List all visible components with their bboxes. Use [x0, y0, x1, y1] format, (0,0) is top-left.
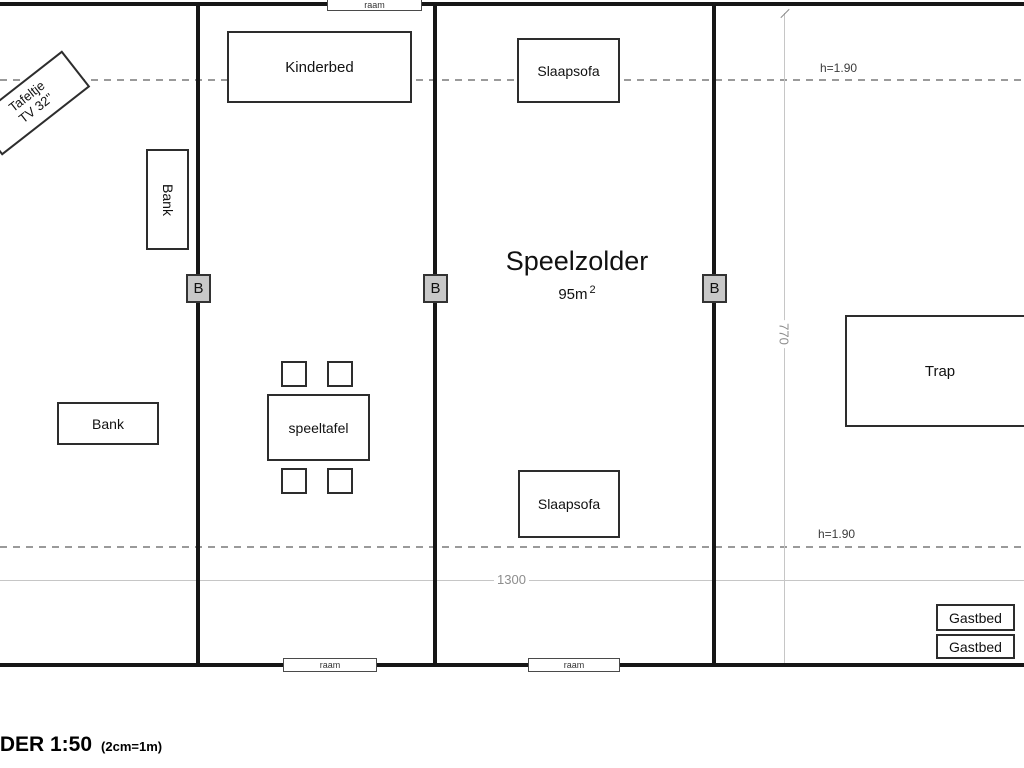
- window-marker-top: raam: [327, 0, 422, 11]
- window-label: raam: [364, 0, 385, 10]
- furniture-label: Kinderbed: [285, 59, 353, 76]
- room-area: 95m2: [437, 284, 717, 303]
- furniture-gastbed-bottom: Gastbed: [936, 634, 1015, 659]
- wall-top: [0, 2, 1024, 6]
- dimension-tick: [780, 9, 789, 18]
- clearance-height-label-top: h=1.90: [820, 61, 857, 75]
- beam-label: B: [193, 280, 203, 297]
- furniture-bank-horizontal: Bank: [57, 402, 159, 445]
- wall-vertical-center: [433, 2, 437, 667]
- beam-marker-left: B: [186, 274, 211, 303]
- chair-top-right: [327, 361, 353, 387]
- furniture-label: Trap: [925, 363, 955, 380]
- furniture-kinderbed: Kinderbed: [227, 31, 412, 103]
- clearance-dashed-line-top: [0, 79, 1024, 81]
- furniture-bank-vertical: Bank: [146, 149, 189, 250]
- furniture-gastbed-top: Gastbed: [936, 604, 1015, 631]
- furniture-label: Gastbed: [949, 610, 1002, 626]
- plan-scale-text: LDER 1:50: [0, 733, 92, 756]
- floor-plan: raam raam raam Kinderbed Slaapsofa Slaap…: [0, 0, 1024, 768]
- furniture-speeltafel: speeltafel: [267, 394, 370, 461]
- room-area-exponent: 2: [590, 284, 596, 296]
- wall-vertical-right: [712, 2, 716, 667]
- furniture-label: Slaapsofa: [537, 63, 599, 79]
- clearance-dashed-line-bottom: [0, 546, 1024, 548]
- window-marker-bottom-left: raam: [283, 658, 377, 672]
- furniture-slaapsofa-bottom: Slaapsofa: [518, 470, 620, 538]
- room-name: Speelzolder: [437, 246, 717, 277]
- chair-bottom-left: [281, 468, 307, 494]
- chair-top-left: [281, 361, 307, 387]
- furniture-label: Gastbed: [949, 639, 1002, 655]
- clearance-height-label-bottom: h=1.90: [818, 527, 855, 541]
- dimension-depth-label: 770: [777, 320, 792, 348]
- chair-bottom-right: [327, 468, 353, 494]
- room-area-value: 95m: [558, 286, 587, 303]
- furniture-label: Slaapsofa: [538, 496, 600, 512]
- window-label: raam: [320, 660, 341, 670]
- wall-vertical-left: [196, 2, 200, 667]
- furniture-trap: Trap: [845, 315, 1024, 427]
- furniture-label: Bank: [92, 416, 124, 432]
- plan-scale-title: LDER 1:50(2cm=1m): [0, 733, 162, 757]
- furniture-slaapsofa-top: Slaapsofa: [517, 38, 620, 103]
- furniture-label: Bank: [159, 184, 175, 216]
- window-label: raam: [564, 660, 585, 670]
- wall-bottom: [0, 663, 1024, 667]
- dimension-width-label: 1300: [494, 572, 529, 587]
- window-marker-bottom-center: raam: [528, 658, 620, 672]
- furniture-tafeltje-tv: Tafeltje TV 32": [0, 50, 90, 155]
- furniture-label: speeltafel: [289, 420, 349, 436]
- plan-scale-note: (2cm=1m): [101, 739, 162, 754]
